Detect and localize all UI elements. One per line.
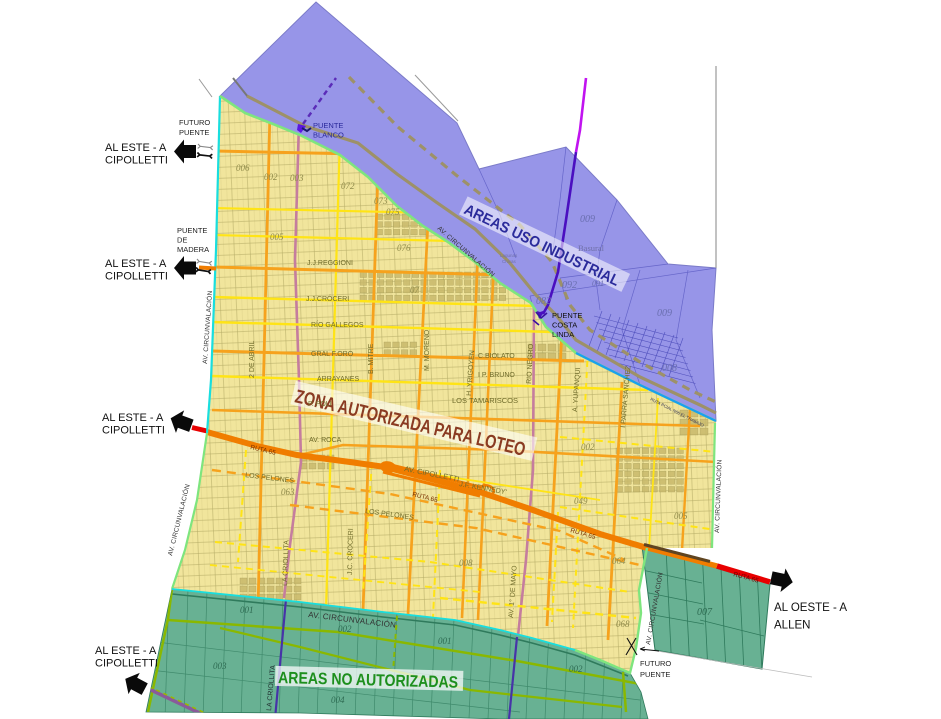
svg-text:ARRAYANES: ARRAYANES	[317, 376, 359, 383]
svg-text:PUENTE: PUENTE	[552, 311, 582, 320]
svg-text:PUENTE: PUENTE	[179, 128, 209, 137]
svg-text:PUENTE: PUENTE	[313, 121, 343, 130]
svg-text:009: 009	[657, 308, 672, 319]
svg-text:049: 049	[574, 496, 588, 506]
svg-text:07: 07	[410, 285, 420, 295]
svg-text:FUTURO: FUTURO	[640, 659, 671, 668]
svg-text:FUTURO: FUTURO	[179, 118, 210, 127]
svg-text:LINDA: LINDA	[552, 330, 574, 339]
svg-text:CIPOLLETTI: CIPOLLETTI	[95, 658, 158, 670]
svg-text:072: 072	[341, 181, 355, 191]
svg-text:Chicas: Chicas	[502, 259, 517, 264]
svg-text:J.J.REGGIONI: J.J.REGGIONI	[307, 260, 353, 267]
svg-text:GRAL F.ORO: GRAL F.ORO	[311, 351, 354, 358]
svg-text:001: 001	[438, 636, 452, 646]
svg-text:003: 003	[290, 173, 304, 183]
svg-text:064: 064	[612, 556, 626, 566]
svg-text:PUENTE: PUENTE	[640, 670, 670, 679]
svg-text:073: 073	[374, 196, 388, 206]
svg-text:068: 068	[616, 619, 630, 629]
svg-text:AV. ROCA: AV. ROCA	[309, 437, 342, 444]
svg-text:002: 002	[581, 442, 595, 452]
svg-text:008: 008	[459, 558, 473, 568]
svg-text:007: 007	[697, 607, 713, 618]
svg-text:AL ESTE - A: AL ESTE - A	[95, 645, 157, 657]
svg-text:B. MITRE: B. MITRE	[368, 343, 375, 374]
svg-text:009: 009	[580, 214, 595, 225]
svg-text:008: 008	[662, 363, 677, 374]
svg-text:006: 006	[236, 163, 250, 173]
svg-text:ALLEN: ALLEN	[774, 620, 810, 632]
svg-text:LOS TAMARISCOS: LOS TAMARISCOS	[452, 396, 518, 405]
svg-text:2 DE ABRIL: 2 DE ABRIL	[249, 341, 256, 378]
svg-text:Basural: Basural	[578, 243, 605, 253]
svg-text:002: 002	[338, 624, 352, 634]
svg-text:004: 004	[331, 695, 345, 705]
svg-text:001: 001	[240, 605, 254, 615]
svg-text:091: 091	[592, 279, 604, 288]
svg-text:AL ESTE - A: AL ESTE - A	[105, 258, 167, 270]
svg-text:J.J.CRÓCERI: J.J.CRÓCERI	[306, 294, 349, 303]
svg-text:DE: DE	[177, 236, 187, 245]
svg-text:M. MORENO: M. MORENO	[424, 329, 431, 371]
svg-text:092: 092	[562, 280, 577, 291]
svg-text:063: 063	[281, 487, 295, 497]
svg-text:Lagunas: Lagunas	[500, 253, 518, 258]
svg-text:I P. BRUNO: I P. BRUNO	[478, 372, 515, 379]
svg-text:CIPOLLETTI: CIPOLLETTI	[102, 425, 165, 437]
svg-text:C.BIOLATO: C.BIOLATO	[478, 353, 515, 360]
svg-text:076: 076	[397, 243, 411, 253]
svg-text:AL OESTE - A: AL OESTE - A	[774, 602, 847, 614]
svg-text:075: 075	[386, 207, 400, 217]
svg-text:COSTA: COSTA	[552, 321, 577, 330]
svg-text:005: 005	[674, 511, 688, 521]
svg-text:CIPOLLETTI: CIPOLLETTI	[105, 271, 168, 283]
svg-text:003: 003	[213, 661, 227, 671]
svg-text:MADERA: MADERA	[177, 245, 209, 254]
svg-text:002: 002	[264, 172, 278, 182]
svg-text:082: 082	[536, 296, 551, 307]
svg-text:002: 002	[569, 664, 583, 674]
svg-text:BLANCO: BLANCO	[313, 131, 344, 140]
svg-text:RÍO GALLEGOS: RÍO GALLEGOS	[311, 320, 364, 329]
svg-text:CIPOLLETTI: CIPOLLETTI	[105, 155, 168, 167]
svg-text:AL ESTE - A: AL ESTE - A	[102, 412, 164, 424]
svg-text:PUENTE: PUENTE	[177, 226, 207, 235]
svg-text:P. POLI: P. POLI	[308, 401, 332, 408]
svg-text:J.C. CROCERI: J.C. CROCERI	[347, 528, 355, 575]
svg-text:AL ESTE - A: AL ESTE - A	[105, 142, 167, 154]
svg-text:005: 005	[270, 232, 284, 242]
